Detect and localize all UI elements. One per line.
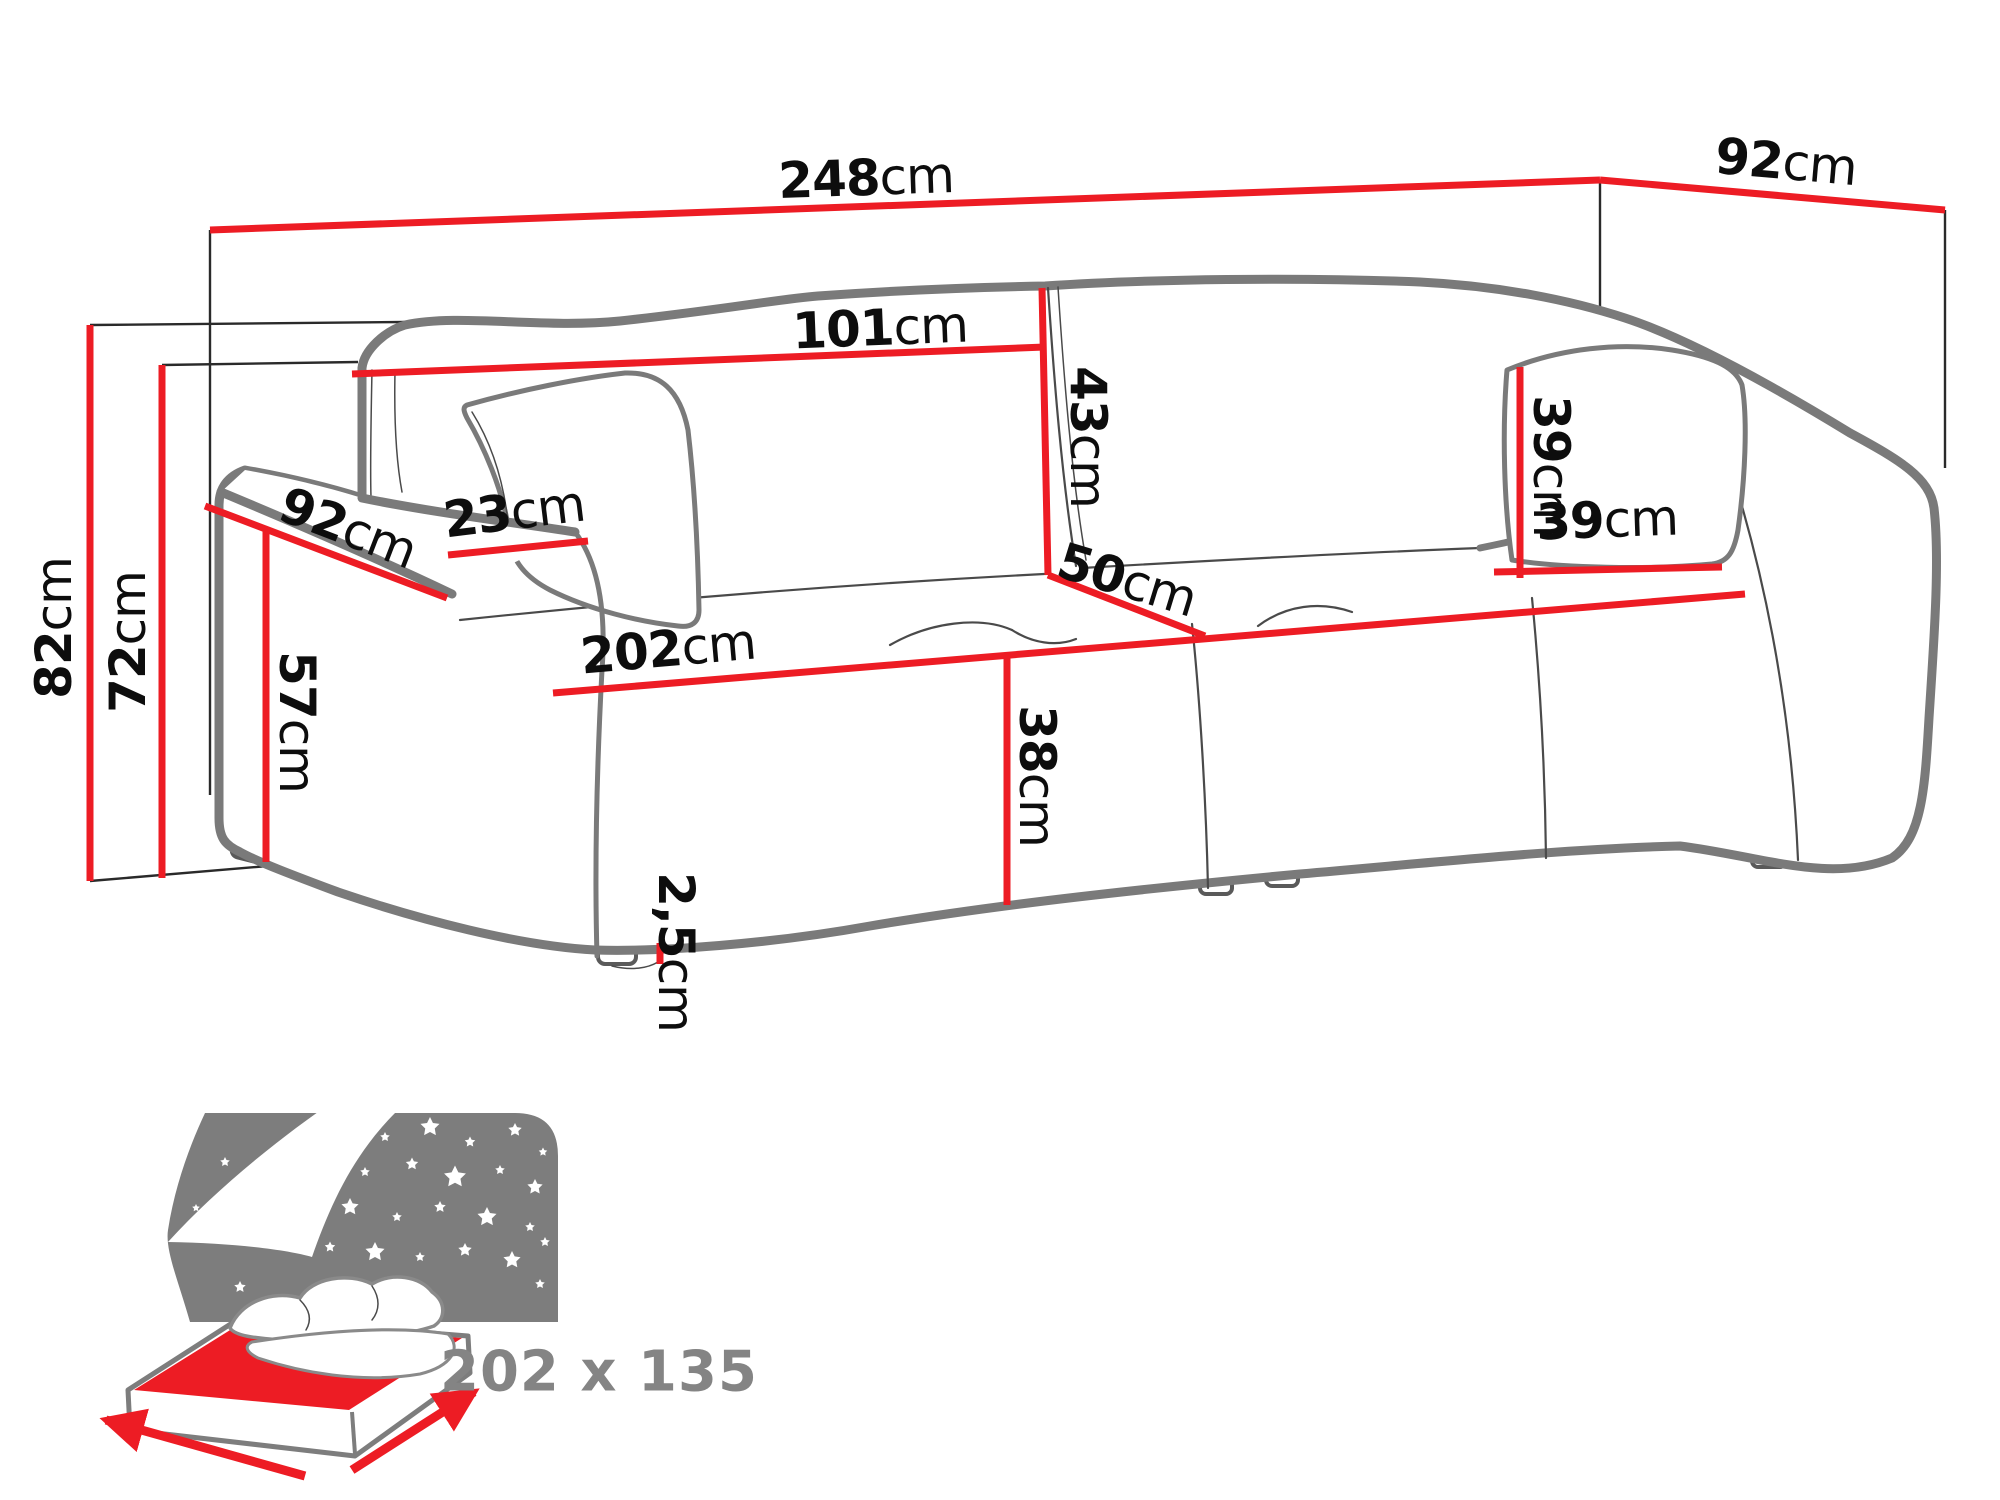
dim-total-depth-label: 92cm <box>1713 127 1859 197</box>
ref-frame-top <box>162 362 358 365</box>
sleeping-area-size-label: 202 x 135 <box>440 1340 758 1405</box>
dim-leg-height-label: 2,5cm <box>647 872 705 1032</box>
ref-height-bottom <box>90 866 268 881</box>
ref-height-top <box>90 322 405 325</box>
dim-backrest-height-label: 43cm <box>1059 366 1117 508</box>
dim-frame-height-label: 72cm <box>99 571 157 713</box>
sleeping-function-icon: 202 x 135 <box>106 1112 758 1476</box>
dim-backrest-width-label: 101cm <box>791 296 969 361</box>
dim-seat-height-label: 38cm <box>1008 705 1066 847</box>
sofa-dimension-diagram: 248cm 92cm 82cm 72cm 101cm 43cm 50cm 202… <box>0 0 2000 1500</box>
dim-line-pillow-width <box>1494 567 1722 572</box>
dim-pillow-width-label: 39cm <box>1535 489 1679 552</box>
diagram-svg: 248cm 92cm 82cm 72cm 101cm 43cm 50cm 202… <box>0 0 2000 1500</box>
dim-total-width-label: 248cm <box>777 146 954 210</box>
dim-total-height-label: 82cm <box>25 557 83 699</box>
dim-armrest-height-label: 57cm <box>268 651 326 793</box>
